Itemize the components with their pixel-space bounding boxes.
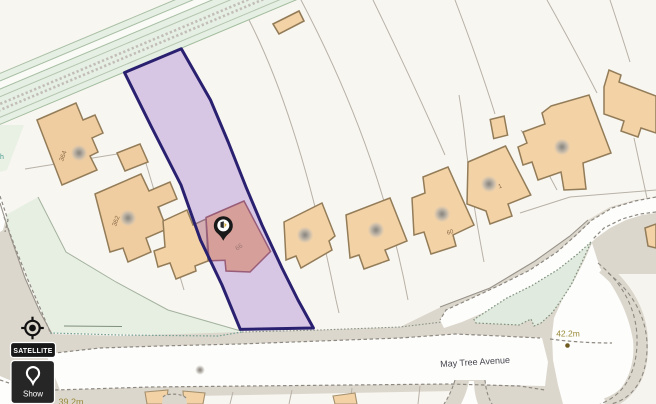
svg-text:SATELLITE: SATELLITE (13, 348, 52, 355)
svg-text:Show: Show (23, 390, 43, 399)
svg-text:h: h (0, 154, 4, 161)
svg-text:39.2m: 39.2m (58, 397, 83, 404)
svg-text:42.2m: 42.2m (556, 329, 580, 339)
